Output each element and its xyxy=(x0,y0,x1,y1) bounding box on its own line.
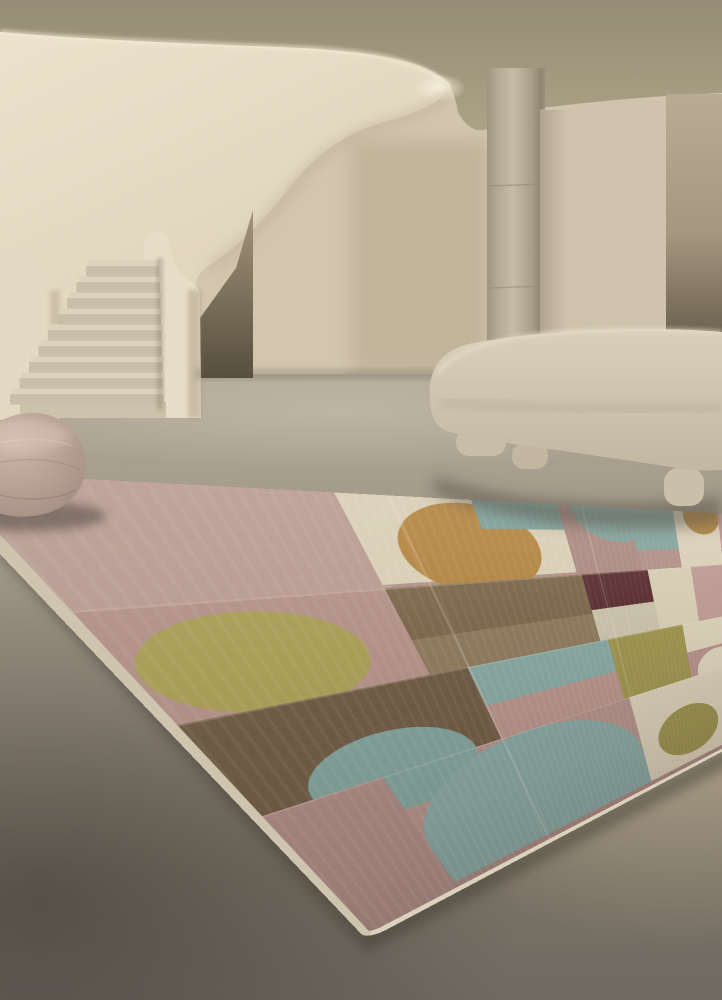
curved-wall-right xyxy=(540,94,722,432)
rug-shape xyxy=(628,508,679,550)
stair-step-riser xyxy=(10,394,164,405)
stair-step-tread xyxy=(69,292,161,298)
stair-step-tread xyxy=(60,308,163,314)
stair-step-tread xyxy=(12,388,165,394)
interior-scene-photo xyxy=(0,0,722,1000)
right-wall-dark-strip xyxy=(666,94,722,346)
stair-step-riser xyxy=(20,378,164,389)
stair-step-tread xyxy=(31,356,164,362)
stair-step-tread xyxy=(22,372,165,378)
wall-floor-shadow xyxy=(196,370,492,378)
step-side-shadow xyxy=(157,258,163,410)
stair-step-tread xyxy=(88,260,160,266)
stair-step-riser xyxy=(77,282,160,293)
stair-step-tread xyxy=(50,324,163,330)
stair-step-riser xyxy=(86,266,159,277)
stair-step-tread xyxy=(79,276,161,282)
concrete-column xyxy=(487,68,545,360)
newel-shade xyxy=(188,290,201,418)
stair-recess-shadow xyxy=(350,140,490,380)
stair-step-riser xyxy=(39,346,163,357)
stair-step-riser xyxy=(48,330,162,341)
stair-step-riser xyxy=(67,298,160,309)
rug-shape xyxy=(471,500,565,530)
stair-step-riser xyxy=(29,362,163,373)
stair-step-riser xyxy=(58,314,162,325)
stair-step-tread xyxy=(41,340,164,346)
